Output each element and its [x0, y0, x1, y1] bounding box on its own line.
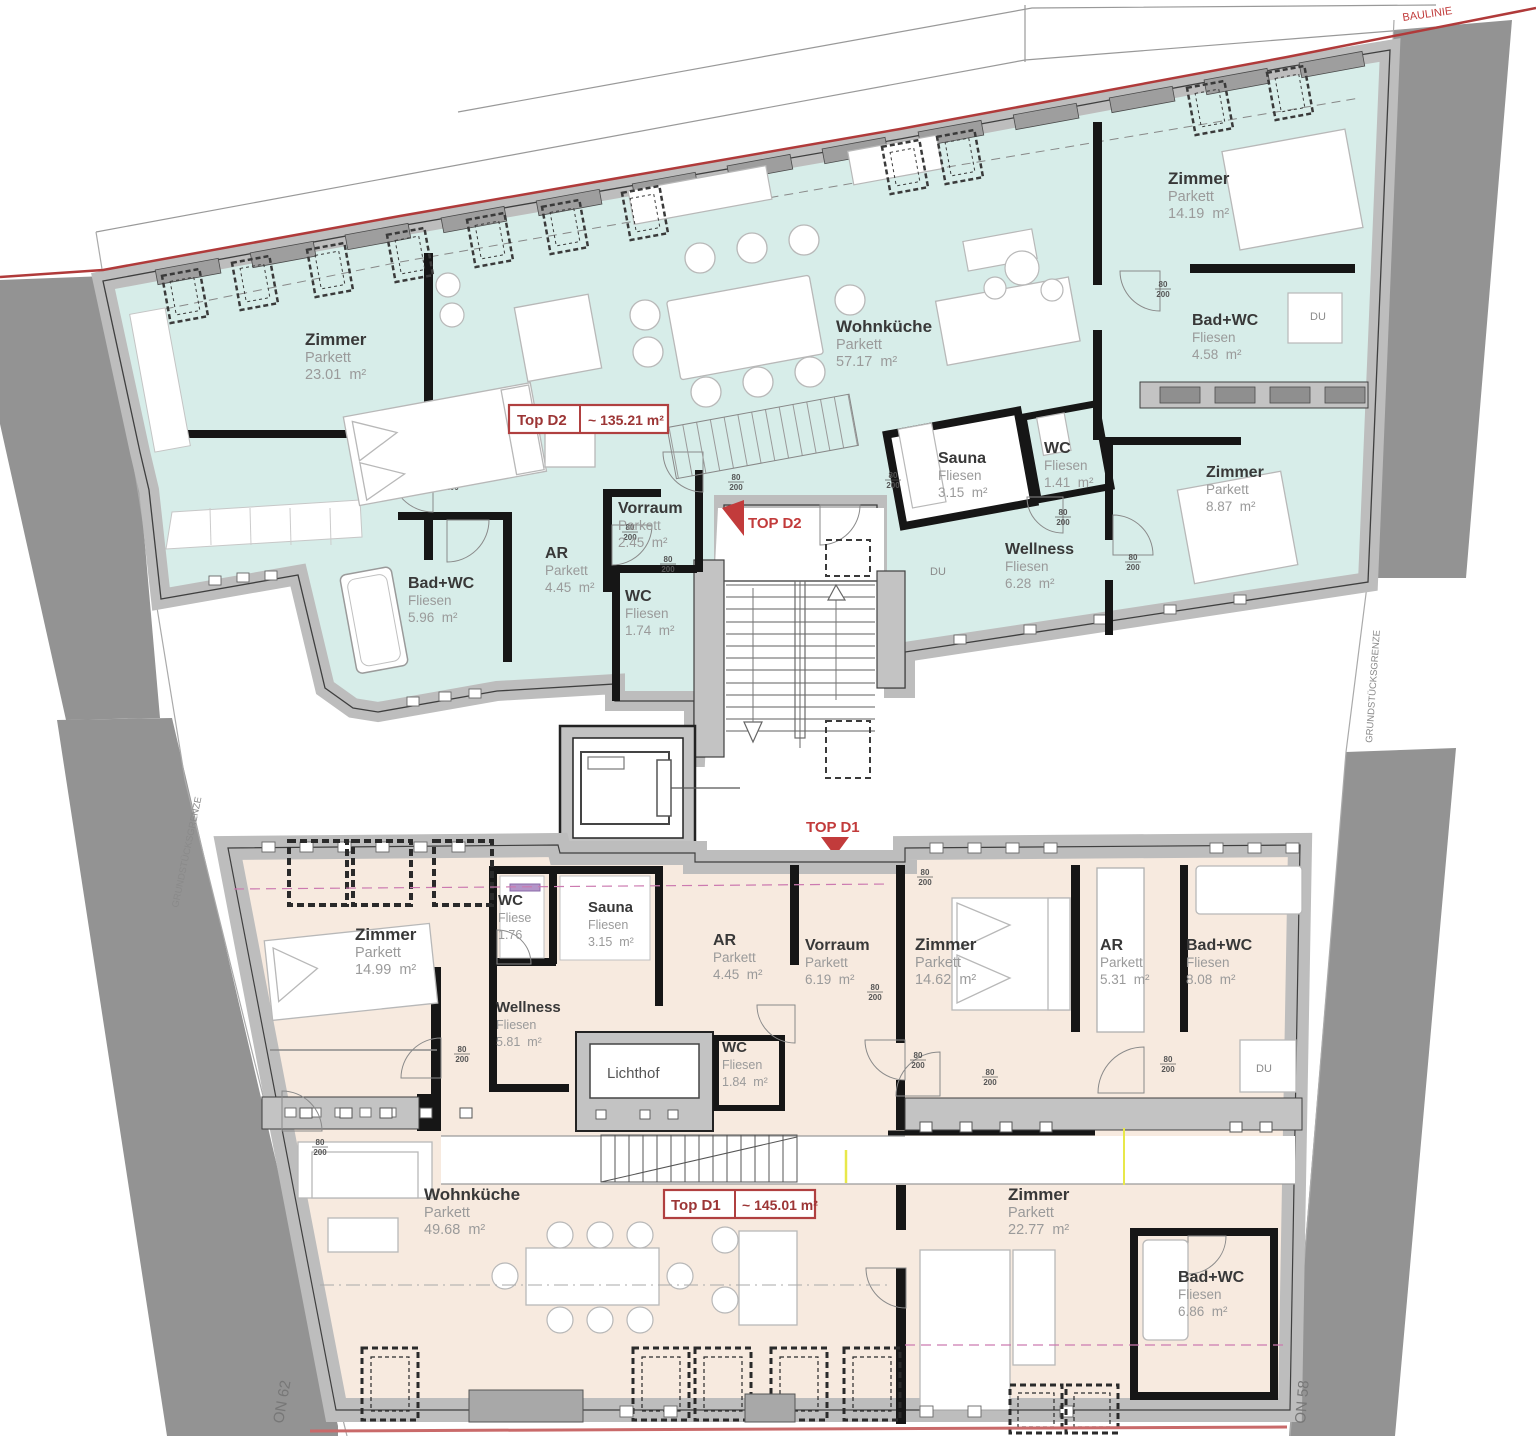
svg-text:200: 200	[661, 565, 675, 574]
svg-text:Zimmer: Zimmer	[1168, 169, 1230, 188]
svg-text:Fliesen: Fliesen	[1005, 559, 1049, 574]
svg-text:80: 80	[1159, 280, 1168, 289]
svg-text:Wohnküche: Wohnküche	[836, 317, 932, 336]
svg-text:Top D2: Top D2	[517, 412, 567, 429]
svg-text:3.15 m²: 3.15 m²	[588, 935, 634, 949]
svg-text:5.31 m²: 5.31 m²	[1100, 972, 1150, 987]
svg-text:200: 200	[1161, 1065, 1175, 1074]
svg-text:80: 80	[921, 868, 930, 877]
svg-text:~ 135.21 m²: ~ 135.21 m²	[588, 412, 664, 428]
svg-text:1.76: 1.76	[498, 928, 522, 942]
svg-text:Zimmer: Zimmer	[1206, 464, 1264, 481]
svg-text:Parkett: Parkett	[618, 518, 661, 533]
svg-text:Parkett: Parkett	[1100, 955, 1143, 970]
svg-text:49.68 m²: 49.68 m²	[424, 1222, 485, 1238]
svg-text:Fliesen: Fliesen	[408, 593, 452, 608]
svg-text:80: 80	[316, 1138, 325, 1147]
svg-text:200: 200	[983, 1078, 997, 1087]
svg-text:Parkett: Parkett	[805, 955, 848, 970]
svg-text:200: 200	[918, 878, 932, 887]
svg-text:Parkett: Parkett	[713, 950, 756, 965]
svg-text:80: 80	[1129, 553, 1138, 562]
svg-text:Parkett: Parkett	[355, 945, 401, 961]
svg-text:~ 145.01 m²: ~ 145.01 m²	[742, 1197, 818, 1213]
svg-text:Wohnküche: Wohnküche	[424, 1185, 520, 1204]
svg-text:Fliesen: Fliesen	[722, 1058, 762, 1072]
svg-text:14.19 m²: 14.19 m²	[1168, 206, 1229, 222]
svg-text:TOP D1: TOP D1	[806, 819, 860, 836]
svg-text:WC: WC	[498, 892, 523, 909]
svg-text:200: 200	[886, 481, 900, 490]
svg-text:Bad+WC: Bad+WC	[1178, 1269, 1245, 1286]
svg-text:80: 80	[458, 1045, 467, 1054]
svg-text:14.62 m²: 14.62 m²	[915, 972, 976, 988]
svg-text:80: 80	[914, 1051, 923, 1060]
svg-text:Fliesen: Fliesen	[1044, 458, 1088, 473]
svg-text:80: 80	[1059, 508, 1068, 517]
svg-text:WC: WC	[722, 1039, 747, 1056]
svg-text:Bad+WC: Bad+WC	[408, 575, 475, 592]
svg-text:23.01 m²: 23.01 m²	[305, 367, 366, 383]
svg-text:Bad+WC: Bad+WC	[1192, 312, 1259, 329]
svg-text:200: 200	[313, 1148, 327, 1157]
svg-text:Zimmer: Zimmer	[915, 935, 977, 954]
svg-text:Zimmer: Zimmer	[305, 330, 367, 349]
svg-text:AR: AR	[713, 932, 737, 949]
svg-text:1.74 m²: 1.74 m²	[625, 623, 675, 638]
svg-text:AR: AR	[545, 545, 569, 562]
svg-text:1.84 m²: 1.84 m²	[722, 1075, 768, 1089]
svg-text:Parkett: Parkett	[1008, 1205, 1054, 1221]
svg-text:Fliesen: Fliesen	[1192, 330, 1236, 345]
svg-text:80: 80	[871, 983, 880, 992]
svg-text:Parkett: Parkett	[915, 955, 961, 971]
svg-text:Lichthof: Lichthof	[607, 1065, 660, 1082]
svg-text:4.58 m²: 4.58 m²	[1192, 347, 1242, 362]
svg-text:AR: AR	[1100, 937, 1124, 954]
svg-text:80: 80	[1164, 1055, 1173, 1064]
svg-text:Zimmer: Zimmer	[1008, 1185, 1070, 1204]
svg-text:14.99 m²: 14.99 m²	[355, 962, 416, 978]
svg-text:Sauna: Sauna	[938, 450, 986, 467]
svg-text:8.08 m²: 8.08 m²	[1186, 972, 1236, 987]
svg-text:Parkett: Parkett	[424, 1205, 470, 1221]
svg-text:4.45 m²: 4.45 m²	[713, 967, 763, 982]
svg-text:DU: DU	[930, 566, 946, 578]
svg-text:2.45 m²: 2.45 m²	[618, 535, 668, 550]
svg-text:6.28 m²: 6.28 m²	[1005, 576, 1055, 591]
svg-text:Top D1: Top D1	[671, 1197, 721, 1214]
svg-text:Fliesen: Fliesen	[938, 468, 982, 483]
svg-text:Zimmer: Zimmer	[355, 925, 417, 944]
svg-text:Parkett: Parkett	[1168, 189, 1214, 205]
svg-text:200: 200	[455, 1055, 469, 1064]
svg-text:5.81 m²: 5.81 m²	[496, 1035, 542, 1049]
svg-text:DU: DU	[1310, 311, 1326, 323]
svg-text:Wellness: Wellness	[1005, 541, 1074, 558]
svg-text:200: 200	[1126, 563, 1140, 572]
svg-text:WC: WC	[625, 588, 652, 605]
svg-text:5.96 m²: 5.96 m²	[408, 610, 458, 625]
svg-text:Fliesen: Fliesen	[1178, 1287, 1222, 1302]
svg-text:6.19 m²: 6.19 m²	[805, 972, 855, 987]
svg-text:Bad+WC: Bad+WC	[1186, 937, 1253, 954]
svg-text:80: 80	[889, 471, 898, 480]
svg-text:8.87 m²: 8.87 m²	[1206, 499, 1256, 514]
svg-text:200: 200	[1056, 518, 1070, 527]
svg-text:Vorraum: Vorraum	[805, 937, 870, 954]
svg-text:WC: WC	[1044, 440, 1071, 457]
svg-text:Wellness: Wellness	[496, 999, 561, 1016]
svg-text:Vorraum: Vorraum	[618, 500, 683, 517]
svg-text:1.41 m²: 1.41 m²	[1044, 475, 1094, 490]
svg-text:22.77 m²: 22.77 m²	[1008, 1222, 1069, 1238]
svg-text:Parkett: Parkett	[836, 337, 882, 353]
svg-text:Parkett: Parkett	[1206, 482, 1249, 497]
svg-text:Fliesen: Fliesen	[625, 606, 669, 621]
svg-text:TOP D2: TOP D2	[748, 515, 802, 532]
svg-text:Sauna: Sauna	[588, 899, 634, 916]
svg-text:57.17 m²: 57.17 m²	[836, 354, 897, 370]
svg-text:3.15 m²: 3.15 m²	[938, 485, 988, 500]
svg-text:Parkett: Parkett	[545, 563, 588, 578]
svg-text:6.86 m²: 6.86 m²	[1178, 1304, 1228, 1319]
svg-text:200: 200	[911, 1061, 925, 1070]
svg-text:80: 80	[986, 1068, 995, 1077]
svg-text:200: 200	[868, 993, 882, 1002]
svg-text:4.45 m²: 4.45 m²	[545, 580, 595, 595]
svg-text:Fliesen: Fliesen	[496, 1018, 536, 1032]
svg-text:Parkett: Parkett	[305, 350, 351, 366]
svg-text:Fliesen: Fliesen	[1186, 955, 1230, 970]
svg-text:Fliese: Fliese	[498, 911, 531, 925]
svg-text:80: 80	[664, 555, 673, 564]
svg-text:200: 200	[1156, 290, 1170, 299]
svg-text:200: 200	[729, 483, 743, 492]
svg-text:DU: DU	[1256, 1063, 1272, 1075]
svg-text:Fliesen: Fliesen	[588, 918, 628, 932]
svg-text:80: 80	[732, 473, 741, 482]
